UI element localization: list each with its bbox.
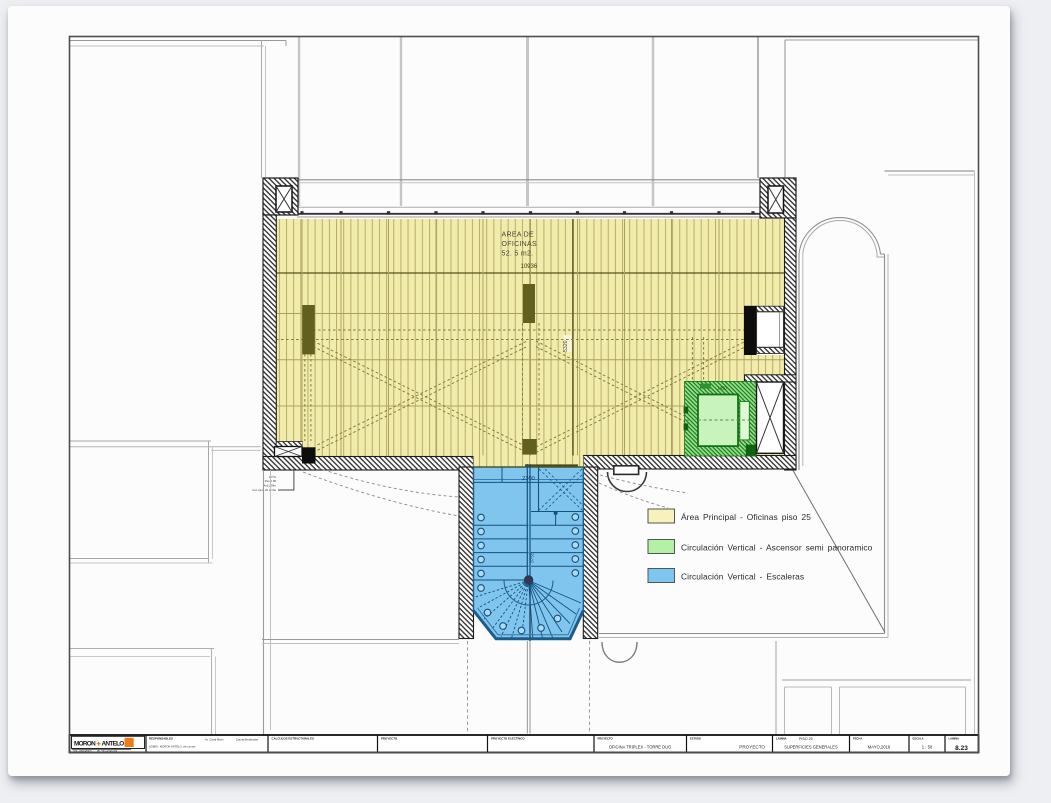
svg-text:RESPONSABLES: RESPONSABLES <box>149 736 173 740</box>
svg-text:Con vano 26 arriba: Con vano 26 arriba <box>252 488 276 492</box>
svg-text:2300: 2300 <box>522 476 535 482</box>
svg-text:1 : 50: 1 : 50 <box>922 745 933 750</box>
svg-text:10936: 10936 <box>521 264 538 270</box>
svg-text:8.23: 8.23 <box>955 745 968 752</box>
svg-text:ESCALA: ESCALA <box>913 736 924 740</box>
svg-text:MAYO,2016: MAYO,2016 <box>868 745 891 750</box>
svg-text:OFICINAS: OFICINAS <box>502 241 537 248</box>
svg-text:LAMINA: LAMINA <box>776 736 787 740</box>
svg-text:Circulación Vertical - Escaler: Circulación Vertical - Escaleras <box>681 572 804 582</box>
svg-text:PROYECTO ELECTRICO: PROYECTO ELECTRICO <box>491 736 525 740</box>
svg-text:SOB09 - MORON ANTELO. els come: SOB09 - MORON ANTELO. els comes <box>149 744 196 748</box>
svg-text:AREA DE: AREA DE <box>502 232 534 239</box>
svg-text:OFICINA TRIPLEX - TORRE DUO: OFICINA TRIPLEX - TORRE DUO <box>609 744 672 749</box>
svg-text:LAMINA: LAMINA <box>949 736 960 740</box>
svg-text:FECHA: FECHA <box>853 736 862 740</box>
svg-text:PROYECTO: PROYECTO <box>739 745 765 750</box>
svg-text:CALCULOS ESTRUCTURALES: CALCULOS ESTRUCTURALES <box>272 736 314 740</box>
svg-text:ANTELO: ANTELO <box>102 740 125 747</box>
svg-text:Av. Cicati Morin: Av. Cicati Morin <box>205 737 224 741</box>
svg-text:52. 5 m2.: 52. 5 m2. <box>502 250 534 257</box>
svg-text:PROYECTO.: PROYECTO. <box>381 736 398 740</box>
svg-text:1450: 1450 <box>717 386 727 391</box>
svg-text:SUPERFICIES GENERALES: SUPERFICIES GENERALES <box>784 745 838 750</box>
svg-text:5320: 5320 <box>563 340 569 352</box>
svg-text:Circulación Vertical - Ascenso: Circulación Vertical - Ascensor semi pan… <box>681 543 873 553</box>
svg-text:Área Principal - Oficinas piso: Área Principal - Oficinas piso 25 <box>681 512 811 522</box>
svg-text:PROYECTO: PROYECTO <box>598 736 613 740</box>
svg-text:Carola Bendinadei: Carola Bendinadei <box>236 737 259 741</box>
svg-text:3755: 3755 <box>529 552 535 563</box>
svg-text:ESTADO: ESTADO <box>690 736 701 740</box>
svg-text:PISO 25: PISO 25 <box>799 737 813 741</box>
svg-text:MORON: MORON <box>74 740 96 747</box>
